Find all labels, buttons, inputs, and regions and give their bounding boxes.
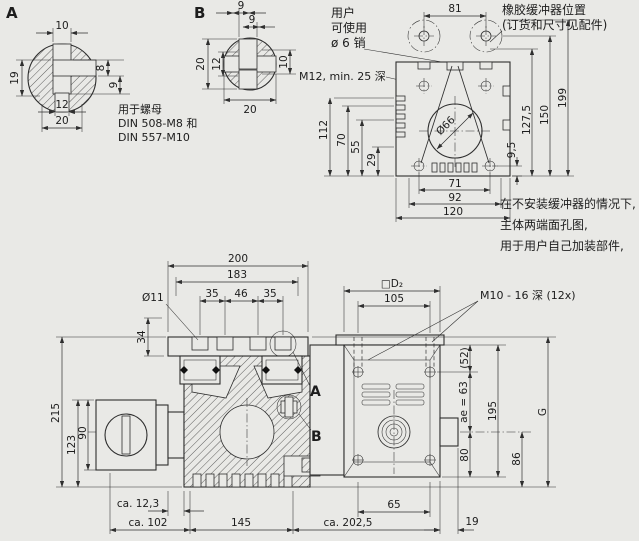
end-face-view: 用户 可使用 ø 6 销 M12, min. 25 深 81 橡胶缓冲器位置 (… — [299, 2, 636, 253]
dim-29: 29 — [366, 153, 378, 166]
dim-b-9-outer: 9 — [238, 0, 245, 12]
dim-150: 150 — [539, 105, 551, 125]
view-a-slot-detail: A 10 8 9 19 12 20 用于螺母 DIN 508-M8 和 DIN … — [6, 4, 197, 144]
dim-square-d2: □D₂ — [381, 278, 403, 290]
dim-a-9: 9 — [108, 82, 120, 89]
motor — [96, 400, 184, 470]
dim-19: 19 — [465, 516, 478, 528]
dim-215: 215 — [50, 403, 62, 423]
main-label-a: A — [310, 384, 321, 400]
dim-80: 80 — [459, 448, 471, 461]
end-view-note-line1: 在不安装缓冲器的情况下, — [500, 196, 636, 211]
dim-145: 145 — [231, 517, 251, 529]
slide-plate — [168, 331, 308, 357]
dim-ca202-5: ca. 202,5 — [324, 517, 373, 529]
technical-drawing-page: A 10 8 9 19 12 20 用于螺母 DIN 508-M8 和 DIN … — [0, 0, 639, 541]
slot-a-note-line1: 用于螺母 — [118, 103, 162, 116]
view-a-label: A — [6, 4, 18, 22]
technical-drawing: A 10 8 9 19 12 20 用于螺母 DIN 508-M8 和 DIN … — [0, 0, 639, 541]
dim-a-8: 8 — [95, 65, 107, 72]
dim-120: 120 — [443, 206, 463, 218]
buffer-note-line1: 橡胶缓冲器位置 — [502, 2, 586, 17]
dim-65: 65 — [387, 499, 400, 511]
dim-ca12-3: ca. 12,3 — [117, 498, 159, 510]
dim-buffer-81: 81 — [448, 3, 461, 15]
dim-92: 92 — [448, 192, 461, 204]
dim-a-12: 12 — [55, 99, 68, 111]
dim-a-19: 19 — [9, 71, 21, 84]
dim-a-20: 20 — [55, 115, 68, 127]
pin-note-line2: 可使用 — [331, 20, 367, 35]
end-view-note-line3: 用于用户自己加装部件, — [500, 238, 624, 253]
dim-g: G — [537, 408, 549, 416]
view-b-label: B — [194, 4, 205, 22]
thread-note-m12: M12, min. 25 深 — [299, 70, 386, 83]
dim-105: 105 — [384, 293, 404, 305]
dim-b-9-inner: 9 — [249, 14, 256, 26]
buffer-note-line2: (订货和尺寸见配件) — [502, 17, 607, 32]
dim-ae63: ae = 63 — [458, 381, 470, 423]
end-cap — [310, 345, 344, 475]
dim-b-20-bottom: 20 — [243, 104, 256, 116]
main-side-view: A B 200 183 35 46 35 Ø11 34 215 123 90 — [50, 253, 576, 534]
dim-199: 199 — [557, 88, 569, 108]
thread-note-m10: M10 - 16 深 (12x) — [480, 289, 576, 302]
view-b-slot-detail: B 9 9 20 12 10 20 — [194, 0, 296, 116]
dim-195: 195 — [487, 401, 499, 421]
dim-9-5: 9,5 — [506, 142, 518, 159]
dim-70: 70 — [336, 133, 348, 146]
dim-52: (52) — [459, 347, 471, 369]
end-view-note-line2: 主体两端面孔图, — [500, 218, 588, 232]
pin-note-line1: 用户 — [331, 5, 355, 20]
gearbox — [336, 335, 458, 477]
dim-hole-o11: Ø11 — [142, 292, 164, 304]
dim-b-12: 12 — [211, 57, 223, 70]
dim-35a: 35 — [205, 288, 218, 300]
slot-a-note-line2: DIN 508-M8 和 — [118, 117, 197, 130]
dim-b-10: 10 — [278, 55, 290, 68]
dim-127-5: 127,5 — [521, 105, 533, 135]
dim-b-20-left: 20 — [195, 57, 207, 70]
drive-shaft-square — [440, 418, 458, 446]
dim-a-10: 10 — [55, 20, 68, 32]
dim-46: 46 — [234, 288, 248, 300]
dim-ca102: ca. 102 — [129, 517, 168, 529]
dim-71: 71 — [448, 178, 461, 190]
dim-35b: 35 — [263, 288, 276, 300]
dim-55: 55 — [350, 140, 362, 153]
dim-183: 183 — [227, 269, 247, 281]
dim-112: 112 — [318, 120, 330, 140]
pin-note-line3: ø 6 销 — [331, 36, 366, 50]
dim-200: 200 — [228, 253, 248, 265]
main-label-b: B — [311, 429, 322, 445]
dim-90: 90 — [77, 426, 89, 439]
dim-86: 86 — [511, 452, 523, 466]
buffer-position-circles — [408, 20, 502, 52]
slot-a-note-line3: DIN 557-M10 — [118, 131, 190, 144]
